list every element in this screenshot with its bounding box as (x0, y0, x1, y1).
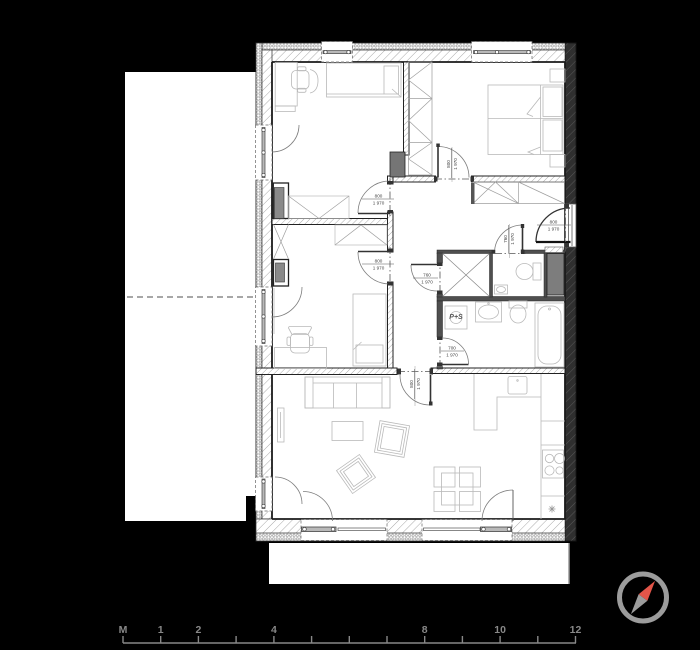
svg-text:1 970: 1 970 (373, 266, 385, 271)
svg-text:1 970: 1 970 (453, 158, 458, 170)
svg-text:1: 1 (158, 624, 164, 636)
svg-text:10: 10 (494, 624, 506, 636)
svg-text:2: 2 (195, 624, 201, 636)
svg-text:M: M (119, 624, 128, 636)
svg-text:1 970: 1 970 (510, 233, 515, 245)
svg-text:800: 800 (446, 160, 451, 168)
svg-text:800: 800 (375, 194, 383, 199)
svg-text:4: 4 (271, 624, 277, 636)
svg-text:1 970: 1 970 (421, 280, 433, 285)
svg-text:760: 760 (423, 273, 431, 278)
svg-text:P+S: P+S (449, 314, 463, 321)
svg-text:1 970: 1 970 (373, 201, 385, 206)
svg-text:760: 760 (503, 235, 508, 243)
svg-text:12: 12 (570, 624, 582, 636)
svg-text:8: 8 (422, 624, 428, 636)
svg-text:800: 800 (550, 220, 558, 225)
svg-text:1 970: 1 970 (446, 353, 458, 358)
svg-text:1 970: 1 970 (548, 227, 560, 232)
svg-text:700: 700 (448, 346, 456, 351)
svg-text:1 970: 1 970 (416, 378, 421, 390)
svg-text:800: 800 (409, 380, 414, 388)
svg-text:800: 800 (375, 259, 383, 264)
